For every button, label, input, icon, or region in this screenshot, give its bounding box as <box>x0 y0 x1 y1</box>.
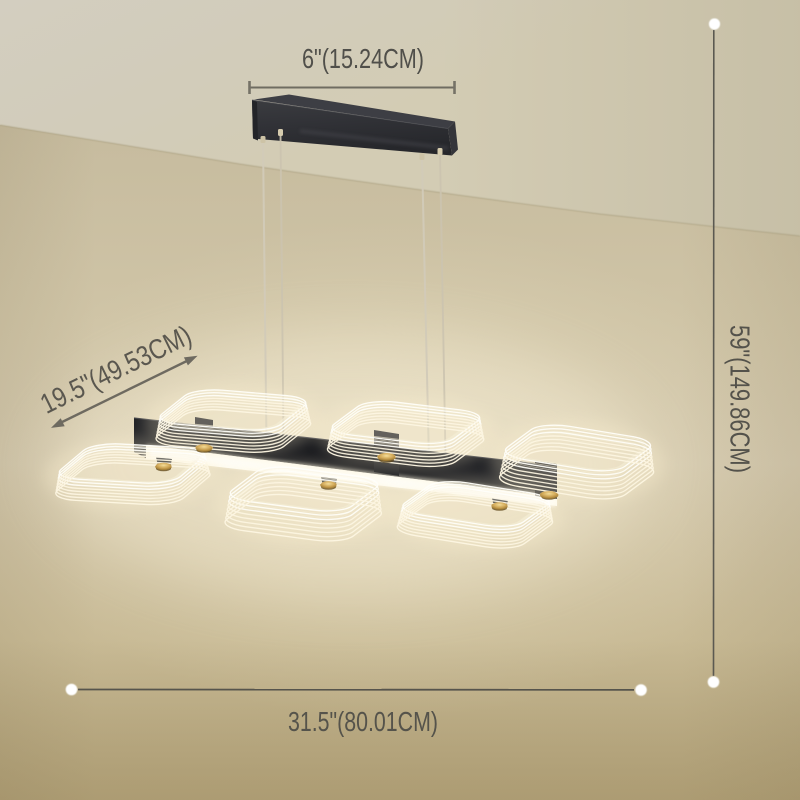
svg-text:6"(15.24CM): 6"(15.24CM) <box>302 43 424 74</box>
svg-text:59"(149.86CM): 59"(149.86CM) <box>725 325 756 473</box>
svg-text:31.5"(80.01CM): 31.5"(80.01CM) <box>288 706 438 737</box>
